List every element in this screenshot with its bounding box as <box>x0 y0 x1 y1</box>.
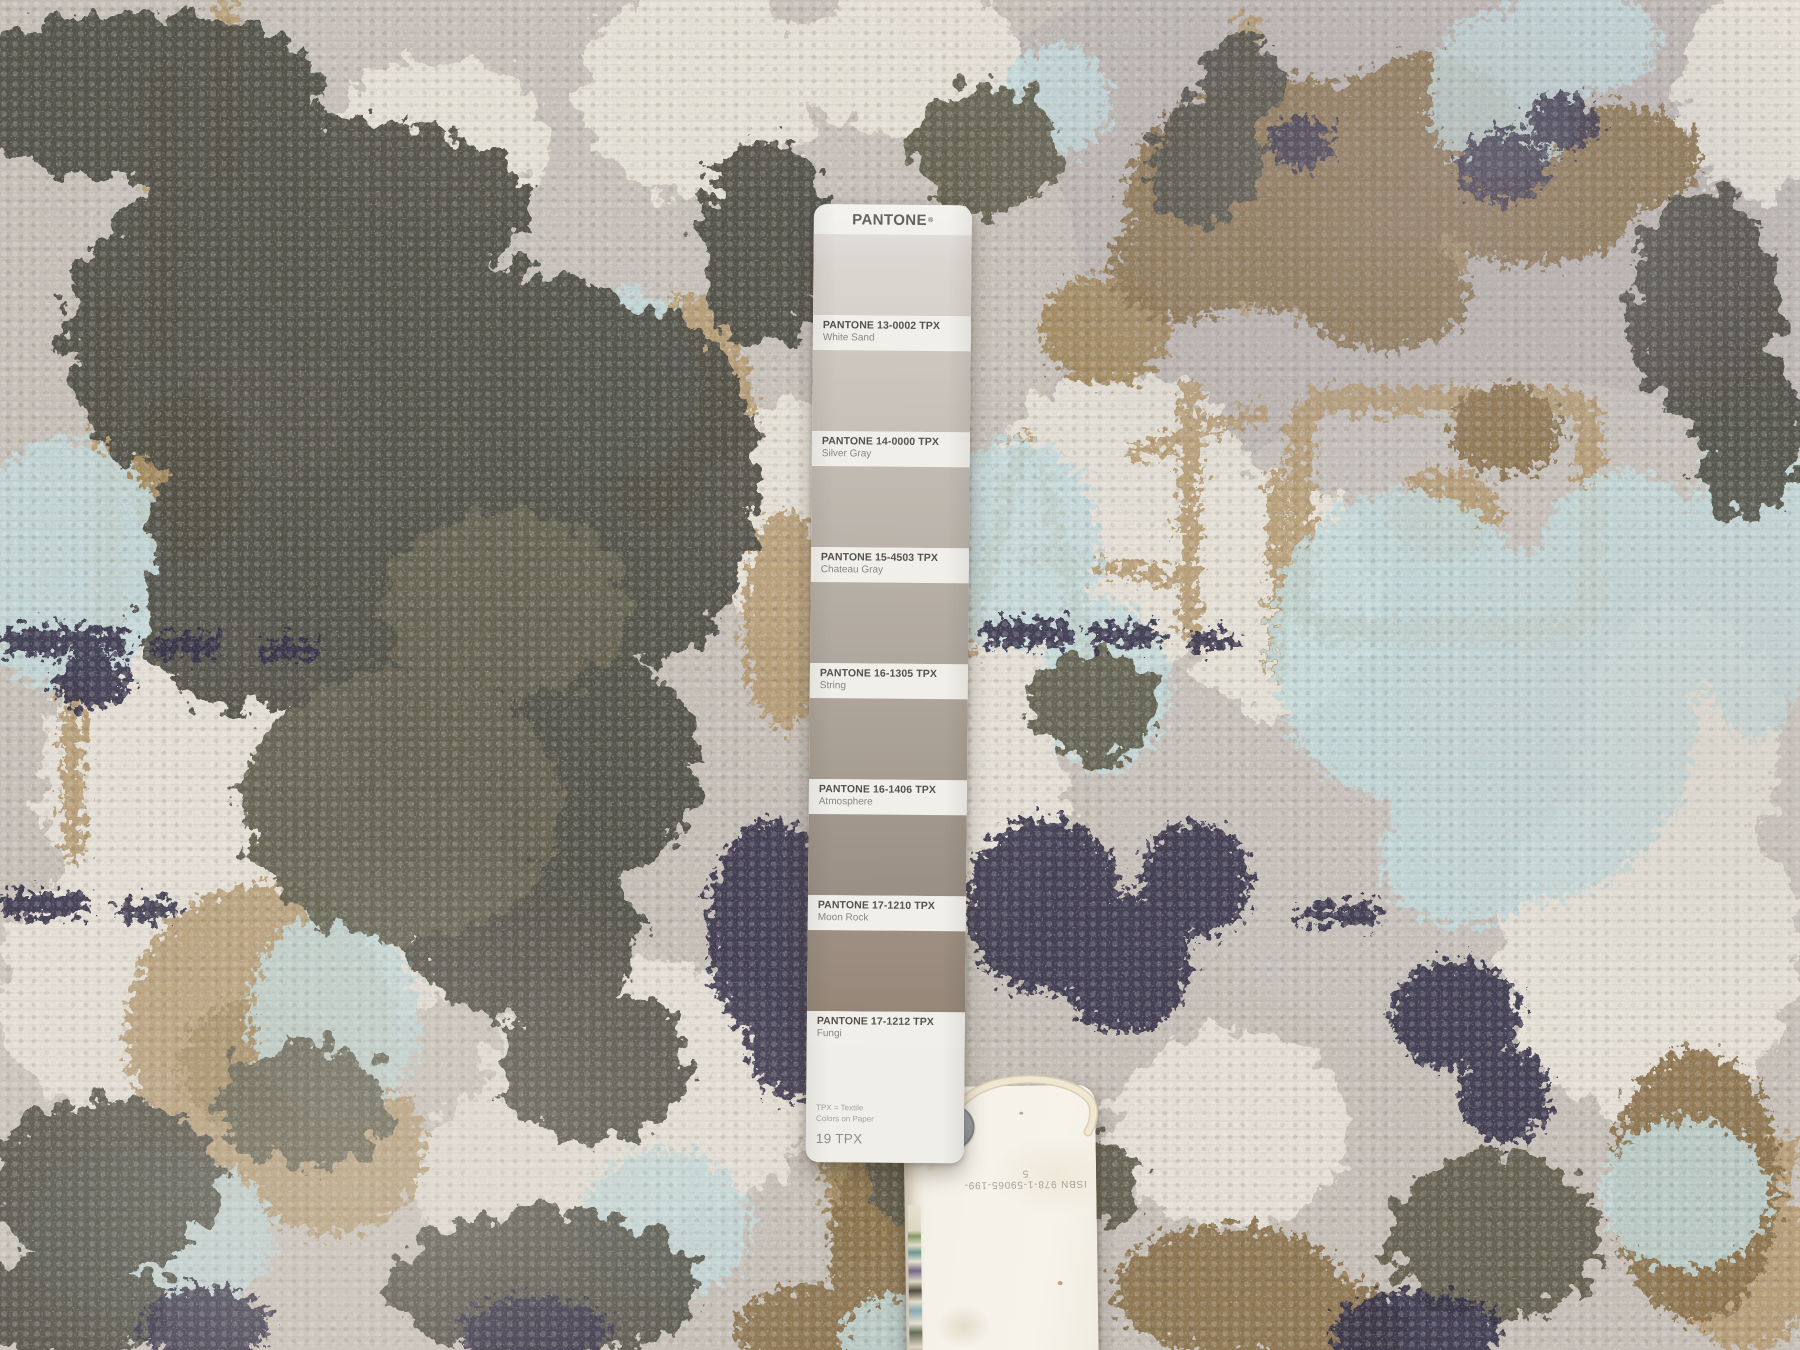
swatch-fungi: PANTONE 17-1212 TPX Fungi <box>807 930 966 1047</box>
swatch-atmosphere: PANTONE 16-1406 TPX Atmosphere <box>809 698 968 815</box>
swatch-code: PANTONE 16-1406 TPX <box>819 783 967 796</box>
card-footer: TPX = Textile Colors on Paper 19 TPX <box>806 1046 965 1163</box>
swatch-code: PANTONE 13-0002 TPX <box>823 319 971 332</box>
swatch-label: PANTONE 13-0002 TPX White Sand <box>813 315 971 351</box>
swatch-chateau-gray: PANTONE 15-4503 TPX Chateau Gray <box>811 466 970 583</box>
swatch-code: PANTONE 16-1305 TPX <box>820 667 968 680</box>
swatch-name: White Sand <box>823 332 971 344</box>
color-chip <box>807 930 966 1012</box>
swatch-code: PANTONE 14-0000 TPX <box>822 435 970 448</box>
tpx-footnote: TPX = Textile Colors on Paper <box>816 1102 964 1126</box>
pantone-swatch-card: PANTONE® PANTONE 13-0002 TPX White Sand … <box>806 204 972 1163</box>
swatch-string: PANTONE 16-1305 TPX String <box>810 582 969 699</box>
book-page-edges <box>908 1205 924 1350</box>
swatch-label: PANTONE 14-0000 TPX Silver Gray <box>812 431 970 467</box>
swatch-name: Fungi <box>817 1028 965 1040</box>
swatch-label: PANTONE 16-1305 TPX String <box>810 663 968 699</box>
dust-speck <box>1019 1112 1023 1115</box>
color-chip <box>812 350 971 432</box>
dust-speck <box>1058 1281 1063 1285</box>
swatch-moon-rock: PANTONE 17-1210 TPX Moon Rock <box>808 814 967 931</box>
swatch-code: PANTONE 17-1210 TPX <box>818 899 966 912</box>
swatch-label: PANTONE 17-1210 TPX Moon Rock <box>808 895 966 931</box>
registered-mark-icon: ® <box>928 216 934 223</box>
color-chip <box>813 234 972 316</box>
swatch-name: Chateau Gray <box>821 564 969 576</box>
swatch-label: PANTONE 17-1212 TPX Fungi <box>807 1011 965 1047</box>
swatch-name: Moon Rock <box>818 912 966 924</box>
swatch-name: String <box>820 680 968 692</box>
book-isbn-text: ISBN 978-1-59065-199-5 <box>962 1167 1088 1191</box>
swatch-label: PANTONE 15-4503 TPX Chateau Gray <box>811 547 969 583</box>
color-chip <box>809 698 968 780</box>
tpx-footnote-line2: Colors on Paper <box>816 1113 964 1125</box>
swatch-code: PANTONE 17-1212 TPX <box>817 1015 965 1028</box>
pantone-logo: PANTONE® <box>814 204 972 235</box>
swatch-label: PANTONE 16-1406 TPX Atmosphere <box>809 779 967 815</box>
color-chip <box>811 466 970 548</box>
tpx-count-label: 19 TPX <box>816 1131 964 1147</box>
swatch-code: PANTONE 15-4503 TPX <box>821 551 969 564</box>
photo-scene: ISBN 978-1-59065-199-5 PANTONE® PANTONE … <box>0 0 1800 1350</box>
color-chip <box>810 582 969 664</box>
pantone-wordmark: PANTONE <box>852 211 927 229</box>
swatch-name: Atmosphere <box>819 796 967 808</box>
swatch-white-sand: PANTONE 13-0002 TPX White Sand <box>813 234 972 351</box>
swatch-name: Silver Gray <box>822 448 970 460</box>
swatch-silver-gray: PANTONE 14-0000 TPX Silver Gray <box>812 350 971 467</box>
color-chip <box>808 814 967 896</box>
